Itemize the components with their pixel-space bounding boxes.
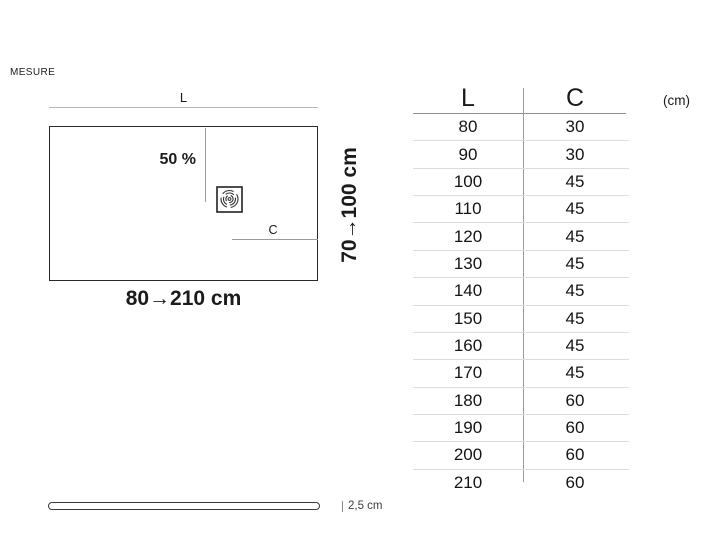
table-row: 150 45: [413, 306, 629, 333]
c-value: 30: [523, 145, 627, 165]
thickness-label: 2,5 cm: [348, 500, 383, 512]
c-value: 45: [523, 281, 627, 301]
c-value: 45: [523, 336, 627, 356]
l-value: 140: [413, 281, 523, 301]
table-row: 130 45: [413, 251, 629, 278]
slope-divider-line: [205, 128, 206, 202]
table-row: 120 45: [413, 223, 629, 250]
side-profile-bar: [48, 502, 320, 510]
l-value: 90: [413, 145, 523, 165]
table-row: 170 45: [413, 360, 629, 387]
page-title: MESURE: [10, 67, 55, 78]
c-value: 45: [523, 227, 627, 247]
c-value: 45: [523, 254, 627, 274]
table-header-c: C: [523, 84, 627, 113]
l-value: 100: [413, 172, 523, 192]
table-row: 210 60: [413, 470, 629, 496]
dimension-line-l: [49, 107, 318, 108]
c-value: 60: [523, 445, 627, 465]
c-value: 45: [523, 363, 627, 383]
slope-label: 50 %: [146, 151, 196, 169]
c-value: 45: [523, 309, 627, 329]
l-value: 80: [413, 117, 523, 137]
l-value: 150: [413, 309, 523, 329]
c-value: 30: [523, 117, 627, 137]
drain-icon: [216, 186, 243, 213]
thickness-tick: [342, 501, 343, 512]
c-value: 60: [523, 391, 627, 411]
length-range-label: 80→210 cm: [49, 287, 318, 311]
table-row: 200 60: [413, 442, 629, 469]
c-value: 45: [523, 199, 627, 219]
l-value: 200: [413, 445, 523, 465]
table-row: 100 45: [413, 169, 629, 196]
size-table-rows: 80 30 90 30 100 45 110 45 120 45 130 45 …: [413, 114, 629, 496]
l-value: 130: [413, 254, 523, 274]
table-row: 140 45: [413, 278, 629, 305]
dimension-label-c: C: [263, 223, 283, 237]
l-value: 190: [413, 418, 523, 438]
dimension-label-l: L: [49, 90, 318, 105]
depth-range-label: 70→100 cm: [338, 120, 362, 290]
spec-sheet: MESURE L 50 % C 80→210 cm 70→100 cm L C …: [0, 0, 720, 540]
tray-outline: [49, 126, 318, 281]
table-row: 180 60: [413, 388, 629, 415]
c-value: 60: [523, 473, 627, 493]
c-value: 45: [523, 172, 627, 192]
c-value: 60: [523, 418, 627, 438]
l-value: 160: [413, 336, 523, 356]
l-value: 180: [413, 391, 523, 411]
table-row: 90 30: [413, 141, 629, 168]
table-row: 190 60: [413, 415, 629, 442]
table-row: 160 45: [413, 333, 629, 360]
l-value: 210: [413, 473, 523, 493]
dimension-line-c: [232, 239, 318, 240]
table-row: 80 30: [413, 114, 629, 141]
l-value: 170: [413, 363, 523, 383]
l-value: 120: [413, 227, 523, 247]
table-row: 110 45: [413, 196, 629, 223]
table-unit-label: (cm): [663, 93, 690, 108]
table-header-l: L: [413, 84, 523, 113]
l-value: 110: [413, 199, 523, 219]
